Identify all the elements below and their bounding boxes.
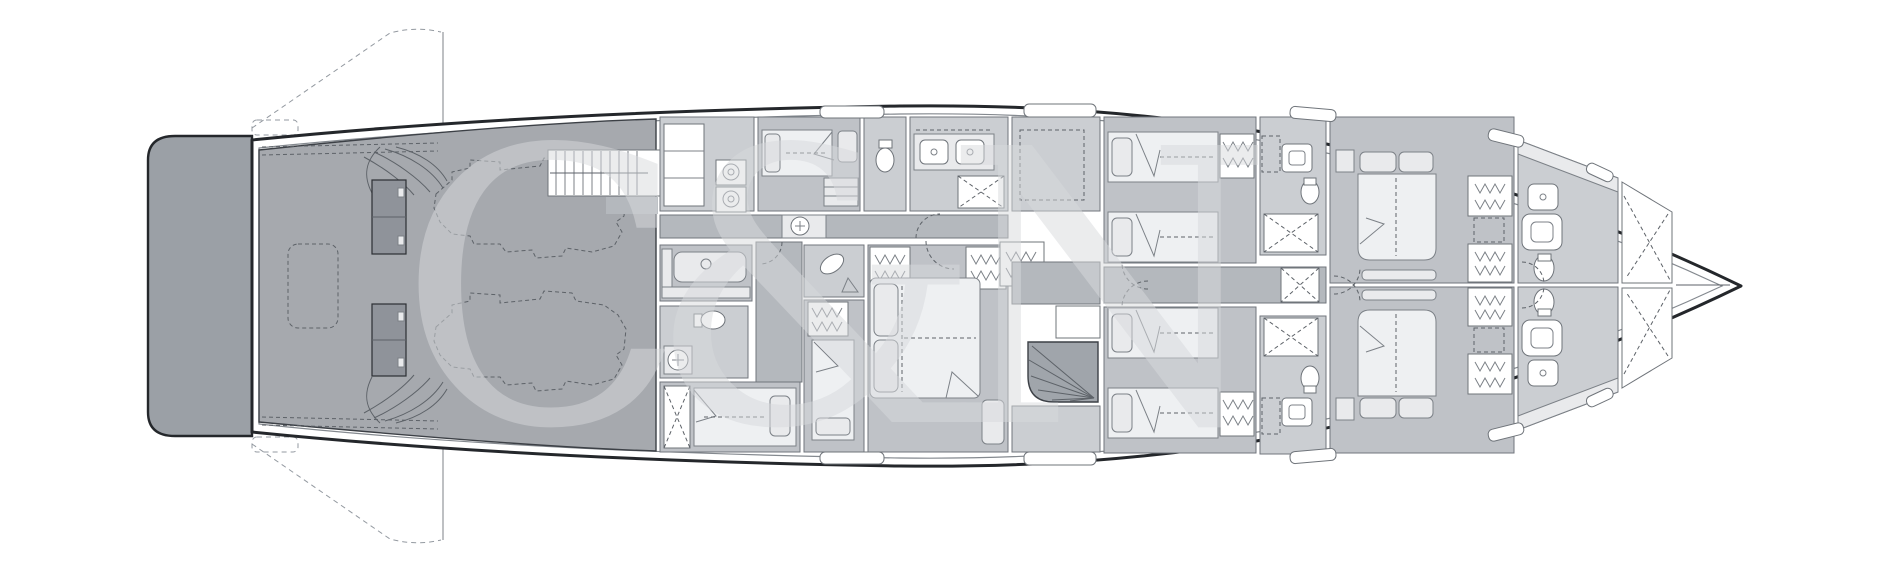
platform-hatch-bottom xyxy=(252,437,298,452)
shower xyxy=(1264,214,1318,252)
vip-bathroom-port xyxy=(1518,140,1618,283)
toilet xyxy=(1301,366,1319,393)
shower-tray xyxy=(1282,144,1312,172)
toilet xyxy=(1301,178,1319,204)
deck-plan-svg: C&N xyxy=(0,0,1900,578)
bench xyxy=(1362,290,1436,300)
wardrobe xyxy=(1468,244,1512,282)
nightstand xyxy=(1336,398,1354,420)
shower-tray xyxy=(1522,320,1562,356)
yacht-deck-plan: C&N xyxy=(0,0,1900,578)
vip-cabin-starboard xyxy=(1330,287,1514,453)
shower-tray xyxy=(1522,214,1562,250)
watermark-monogram: C&N xyxy=(397,69,1263,512)
vip-bathroom-starboard xyxy=(1518,287,1618,430)
bow-shower-starboard xyxy=(1622,288,1672,388)
lift xyxy=(1281,268,1319,302)
guest-bathroom-port xyxy=(1260,117,1326,255)
shower xyxy=(1264,318,1318,356)
sink xyxy=(1528,184,1558,210)
guest-bathroom-starboard xyxy=(1260,316,1326,454)
swim-platform xyxy=(148,136,252,436)
vip-cabin-port xyxy=(1330,117,1514,283)
bow-shower-port xyxy=(1622,182,1672,283)
sink xyxy=(1528,360,1558,386)
nightstand xyxy=(1336,150,1354,172)
shower-tray xyxy=(1282,398,1312,426)
platform-hatch-top xyxy=(252,120,298,135)
wardrobe xyxy=(1468,288,1512,326)
bench xyxy=(1362,270,1436,280)
